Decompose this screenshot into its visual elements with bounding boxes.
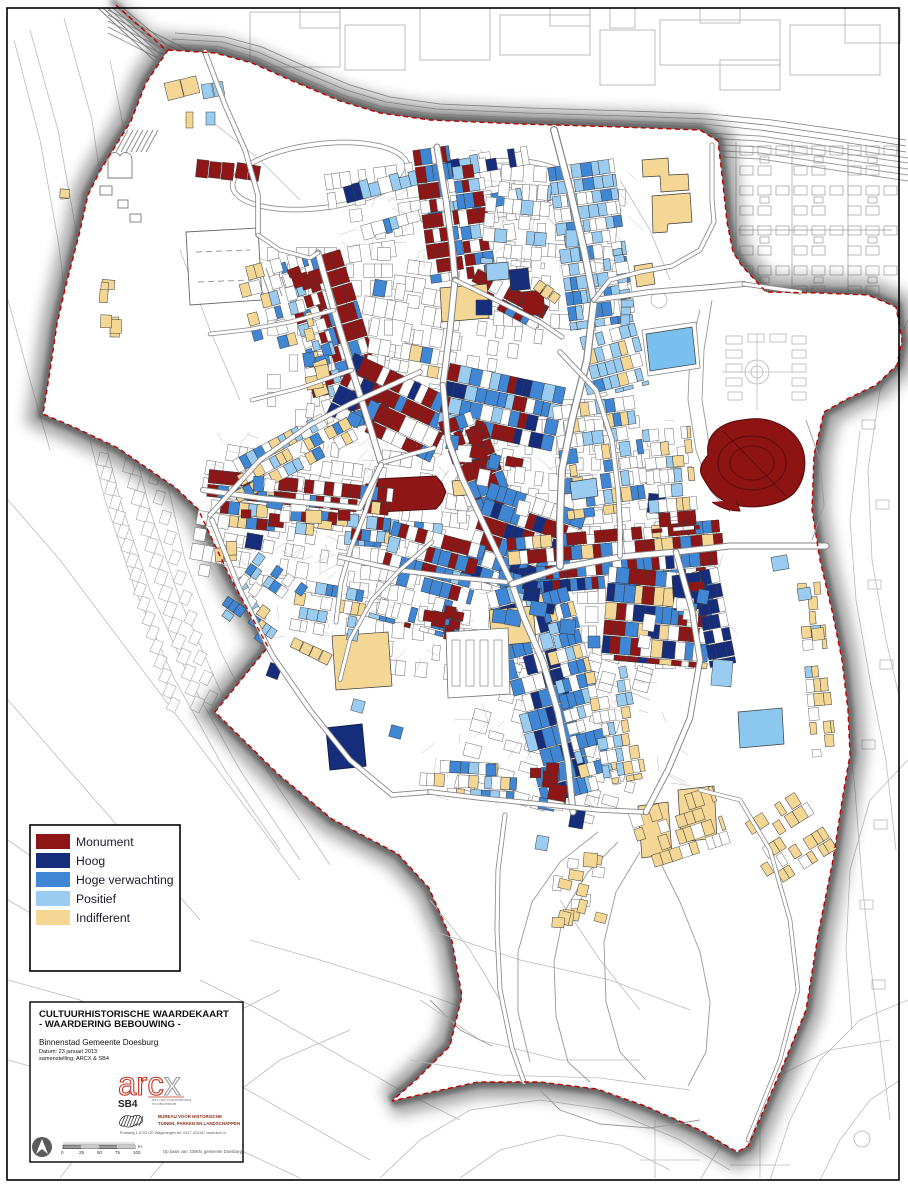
svg-text:Datum: 23 januari 2013: Datum: 23 januari 2013 — [39, 1049, 97, 1055]
svg-text:Hoge verwachting: Hoge verwachting — [76, 873, 174, 887]
svg-text:75: 75 — [115, 1150, 121, 1155]
svg-text:samenstelling: ARCX & SB4: samenstelling: ARCX & SB4 — [39, 1056, 109, 1062]
svg-text:25: 25 — [79, 1150, 85, 1155]
svg-text:Monument: Monument — [76, 835, 134, 849]
svg-text:arc: arc — [118, 1065, 164, 1102]
svg-text:50: 50 — [97, 1150, 103, 1155]
svg-text:TUINEN, PARKEN EN LANDSCHAPPEN: TUINEN, PARKEN EN LANDSCHAPPEN — [158, 1121, 240, 1126]
svg-text:BUREAU VOOR HISTORISCHE: BUREAU VOOR HISTORISCHE — [158, 1114, 222, 1119]
svg-text:- WAARDERING BEBOUWING -: - WAARDERING BEBOUWING - — [39, 1019, 181, 1030]
svg-text:Postweg 1 6703 CD Wageni: Postweg 1 6703 CD Wageningen tel: 0317 4… — [120, 1131, 226, 1135]
svg-text:Indifferent: Indifferent — [76, 911, 131, 925]
svg-text:en cultuurhistorie: en cultuurhistorie — [152, 1102, 177, 1106]
svg-text:Binnenstad Gemeente Doesburg: Binnenstad Gemeente Doesburg — [39, 1038, 159, 1047]
svg-text:SB4: SB4 — [118, 1099, 138, 1110]
svg-text:Positief: Positief — [76, 892, 117, 906]
svg-text:Op basis van: GBKN, gemeente D: Op basis van: GBKN, gemeente Doesburg — [163, 1149, 243, 1154]
svg-text:x: x — [164, 1065, 181, 1102]
svg-text:Hoog: Hoog — [76, 854, 105, 868]
svg-text:m.: m. — [138, 1144, 143, 1149]
svg-text:100: 100 — [133, 1150, 141, 1155]
